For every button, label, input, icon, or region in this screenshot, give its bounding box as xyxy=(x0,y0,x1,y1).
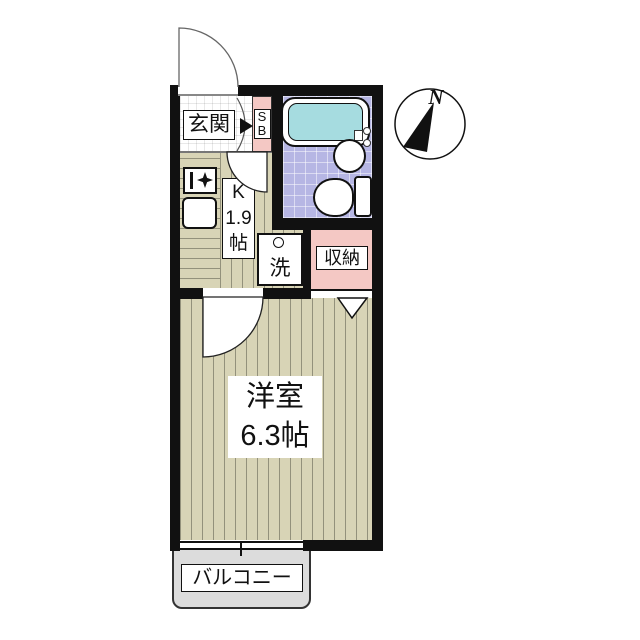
floor-plan: バルコニー S B 洗 玄関 K 1.9 帖 収納 洋室 6.3帖 xyxy=(0,0,640,640)
step-arrow-icon xyxy=(240,118,253,134)
entrance-door-swing-arc xyxy=(179,28,238,87)
compass-north-label: N xyxy=(427,85,444,109)
symbol-overlay: N xyxy=(0,0,640,640)
room-door-swing-arc xyxy=(203,297,263,357)
closet-door-swing xyxy=(338,298,367,318)
genkan-door-swing-arc xyxy=(227,152,267,192)
